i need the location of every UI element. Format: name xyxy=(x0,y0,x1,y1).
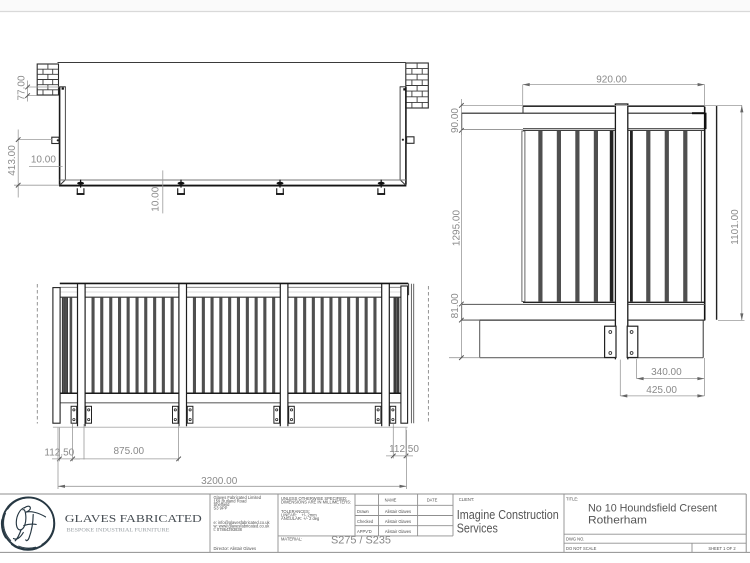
svg-text:3200.00: 3200.00 xyxy=(201,476,238,487)
svg-text:CLIENT:: CLIENT: xyxy=(459,497,474,502)
svg-text:ANGULAR: +/- 2 deg: ANGULAR: +/- 2 deg xyxy=(281,516,320,521)
svg-text:Drawn: Drawn xyxy=(357,509,370,514)
svg-text:112.50: 112.50 xyxy=(389,444,419,455)
svg-text:920.00: 920.00 xyxy=(596,75,627,86)
svg-text:No 10 Houndsfield Cresent: No 10 Houndsfield Cresent xyxy=(588,503,718,515)
svg-text:413.00: 413.00 xyxy=(7,145,18,176)
svg-text:Services: Services xyxy=(457,521,498,536)
svg-text:Alistair Glaves: Alistair Glaves xyxy=(385,519,411,524)
svg-text:t: 07864393838: t: 07864393838 xyxy=(214,527,243,532)
svg-text:10.00: 10.00 xyxy=(150,186,161,211)
svg-text:APPV'D: APPV'D xyxy=(357,529,372,534)
svg-text:GLAVES FABRICATED: GLAVES FABRICATED xyxy=(65,513,202,525)
svg-text:81.00: 81.00 xyxy=(450,293,461,318)
svg-text:Director: Alistair Glaves: Director: Alistair Glaves xyxy=(214,546,257,551)
svg-text:Checked: Checked xyxy=(357,519,374,524)
svg-text:77.00: 77.00 xyxy=(17,75,28,100)
svg-text:1101.00: 1101.00 xyxy=(730,209,741,245)
svg-text:S3 9PP: S3 9PP xyxy=(214,506,228,511)
svg-text:90.00: 90.00 xyxy=(450,108,461,133)
svg-text:SHEET 1 OF 2: SHEET 1 OF 2 xyxy=(708,546,736,551)
svg-text:340.00: 340.00 xyxy=(651,367,682,378)
svg-text:DATE: DATE xyxy=(427,498,438,503)
svg-text:DIMENSIONS ARE IN MILLIMETERS:: DIMENSIONS ARE IN MILLIMETERS: xyxy=(281,499,351,504)
svg-text:MATERIAL:: MATERIAL: xyxy=(281,536,302,541)
svg-text:NAME: NAME xyxy=(385,498,397,503)
svg-text:Rotherham: Rotherham xyxy=(588,515,647,527)
svg-text:1295.00: 1295.00 xyxy=(451,209,462,246)
svg-text:425.00: 425.00 xyxy=(646,385,677,396)
svg-text:DWG NO.: DWG NO. xyxy=(566,537,584,542)
svg-text:TITLE:: TITLE: xyxy=(566,496,578,501)
svg-text:Alistair Glaves: Alistair Glaves xyxy=(385,529,411,534)
svg-text:S275 / S235: S275 / S235 xyxy=(331,534,391,546)
svg-text:112.50: 112.50 xyxy=(44,447,74,458)
svg-text:Alistair Glaves: Alistair Glaves xyxy=(385,509,411,514)
svg-text:10.00: 10.00 xyxy=(31,155,56,166)
svg-text:875.00: 875.00 xyxy=(114,446,145,457)
svg-text:BESPOKE INDUSTRIAL FURNITURE: BESPOKE INDUSTRIAL FURNITURE xyxy=(67,529,170,534)
svg-text:DO NOT SCALE: DO NOT SCALE xyxy=(566,546,597,551)
